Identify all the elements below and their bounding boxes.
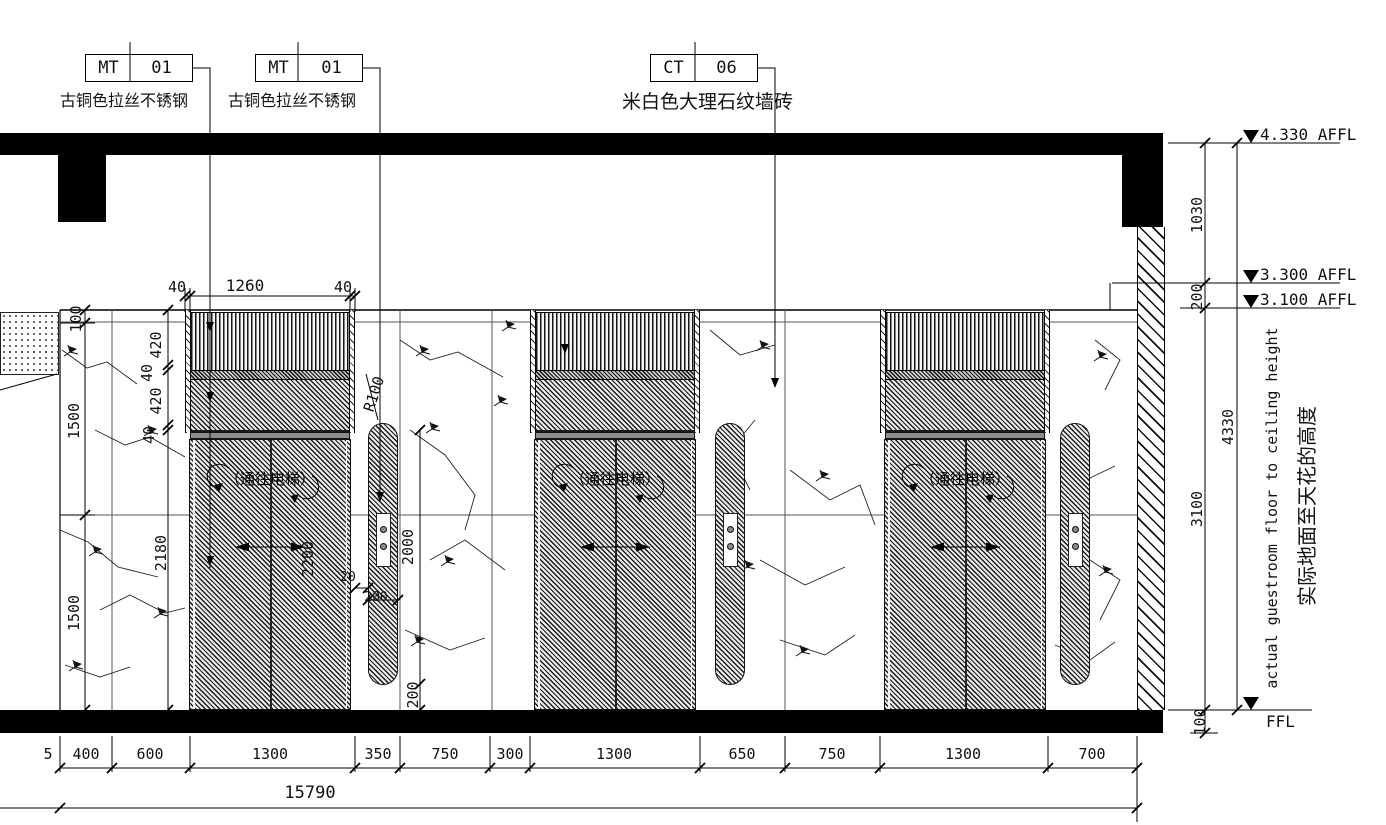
level-marker-3300: 3.300 AFFL [1260, 265, 1356, 284]
dim-label: 40 [166, 278, 188, 296]
ceiling-height-note-zh: 实际地面至天花的高度 [1291, 391, 1313, 621]
dimension-overlay [0, 0, 1386, 825]
dim-label: 400 [64, 745, 108, 763]
level-marker-3100: 3.100 AFFL [1260, 290, 1356, 309]
dim-label: 40 [332, 278, 354, 296]
dim-label: 100 [67, 289, 85, 349]
ceiling-height-note-en: actual guestroom floor to ceiling height [1263, 313, 1281, 703]
dim-label-total: 15790 [270, 783, 350, 803]
dim-label: 2180 [152, 523, 170, 583]
dim-label: 1300 [588, 745, 640, 763]
dim-label: 350 [356, 745, 400, 763]
dim-label: 100 [1191, 692, 1209, 752]
dim-label: 2200 [299, 529, 317, 589]
dim-label: 1030 [1188, 185, 1206, 245]
level-marker-ffl: FFL [1266, 712, 1295, 731]
level-marker-4330: 4.330 AFFL [1260, 125, 1356, 144]
dim-label: 20 [336, 570, 360, 585]
dim-label: 5 [42, 745, 54, 763]
dim-label: 1500 [65, 583, 83, 643]
dim-label: 750 [810, 745, 854, 763]
dim-label: 2000 [399, 517, 417, 577]
dim-label: 200 [358, 590, 394, 605]
dim-label: 200 [404, 665, 422, 725]
dim-label: 650 [720, 745, 764, 763]
dim-label: 4330 [1219, 397, 1237, 457]
dim-label: 750 [423, 745, 467, 763]
dim-label: 1500 [65, 391, 83, 451]
dim-label: 1300 [937, 745, 989, 763]
dim-label: 700 [1070, 745, 1114, 763]
dim-label: 1260 [215, 276, 275, 295]
dim-label: 1300 [244, 745, 296, 763]
dim-label: 600 [128, 745, 172, 763]
elevation-drawing: （通往电梯） （通往电梯） （通往电梯） [0, 0, 1386, 825]
leader-arrows [206, 130, 1259, 710]
dim-label: 40 [140, 405, 158, 465]
dim-label: 200 [1188, 267, 1206, 327]
dim-label: 3100 [1188, 479, 1206, 539]
dim-label: 300 [488, 745, 532, 763]
